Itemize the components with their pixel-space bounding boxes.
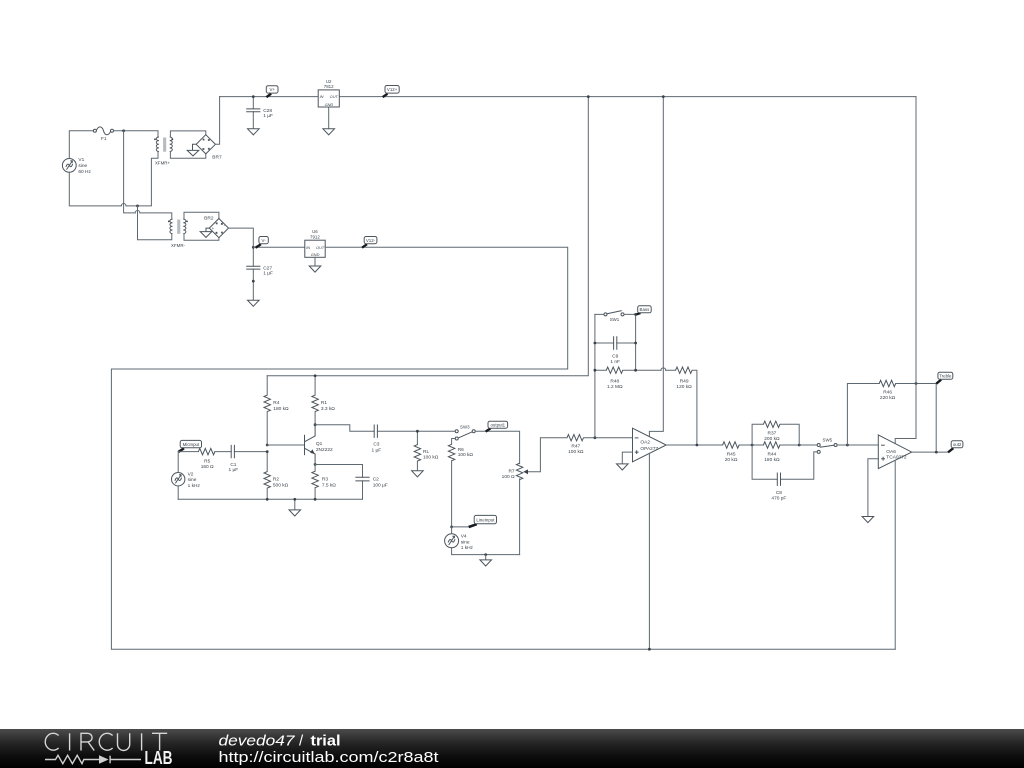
svg-text:LAB: LAB [145,748,173,768]
svg-text:7912: 7912 [310,235,320,240]
svg-text:OPA277: OPA277 [640,446,658,452]
svg-text:Q1: Q1 [316,441,323,447]
svg-text:C27: C27 [263,265,272,271]
svg-text:U2: U2 [326,79,332,84]
svg-text:output1: output1 [490,423,505,428]
svg-text:R48: R48 [610,378,619,384]
svg-text:100 kΩ: 100 kΩ [423,454,439,460]
svg-text:C8: C8 [776,490,782,496]
svg-text:1 µF: 1 µF [229,467,239,473]
svg-text:R2: R2 [273,477,279,483]
svg-text:100 kΩ: 100 kΩ [458,452,474,458]
svg-text:MicInput: MicInput [183,442,200,447]
svg-text:V+: V+ [269,87,275,92]
svg-text:1 µF: 1 µF [263,113,273,119]
svg-text:200 kΩ: 200 kΩ [764,436,780,442]
svg-text:1 kHz: 1 kHz [461,545,474,551]
svg-text:V-: V- [262,238,267,243]
svg-text:R4: R4 [273,400,279,406]
svg-text:220 kΩ: 220 kΩ [880,395,896,401]
svg-text:60 Hz: 60 Hz [78,169,91,175]
svg-text:R1: R1 [321,400,327,406]
svg-text:7812: 7812 [324,84,334,89]
svg-text:trial: trial [311,732,341,749]
svg-text:http://circuitlab.com/c2r8a8t: http://circuitlab.com/c2r8a8t [219,749,440,766]
svg-text:R37: R37 [767,431,776,437]
svg-text:V12-: V12- [366,238,376,243]
svg-text:20 kΩ: 20 kΩ [725,457,738,463]
svg-text:OA2: OA2 [640,440,650,446]
svg-text:GND: GND [311,252,320,257]
svg-text:Treble: Treble [939,374,952,379]
svg-text:100 µF: 100 µF [373,483,388,489]
svg-text:XFMR-: XFMR- [171,243,185,248]
svg-text:TCA0372: TCA0372 [886,454,907,460]
svg-text:RL: RL [423,449,429,455]
svg-text:SW3: SW3 [460,424,470,429]
svg-text:470 pF: 470 pF [771,495,786,501]
svg-text:U6: U6 [312,229,318,234]
svg-text:2N2222: 2N2222 [316,447,333,453]
svg-text:V4: V4 [461,534,467,540]
svg-text:XFMR+: XFMR+ [155,161,170,166]
svg-text:V1: V1 [78,157,84,163]
svg-text:160 Ω: 160 Ω [201,464,214,470]
svg-text:1.2 MΩ: 1.2 MΩ [607,384,623,390]
svg-text:7.5 kΩ: 7.5 kΩ [322,482,336,488]
svg-text:BR7: BR7 [212,155,222,161]
svg-text:OA6: OA6 [886,449,896,455]
svg-text:3.3 kΩ: 3.3 kΩ [321,406,335,412]
svg-text:120 kΩ: 120 kΩ [676,384,692,390]
svg-text:devedo47: devedo47 [219,732,296,749]
svg-text:R6: R6 [458,447,464,453]
svg-text:1 µF: 1 µF [372,447,382,453]
svg-text:C1: C1 [230,462,236,468]
svg-text:SW5: SW5 [823,438,833,443]
svg-text:180 kΩ: 180 kΩ [764,457,780,463]
svg-text:1 nF: 1 nF [610,359,620,365]
svg-text:out2: out2 [953,442,962,447]
svg-text:OUT: OUT [316,245,325,250]
svg-text:C28: C28 [263,108,272,114]
svg-text:C9: C9 [612,354,618,360]
svg-text:R7: R7 [508,469,514,475]
svg-text:IN: IN [320,94,324,99]
svg-text:GND: GND [325,102,334,107]
svg-text:180 kΩ: 180 kΩ [273,406,289,412]
svg-text:500 kΩ: 500 kΩ [273,482,289,488]
svg-text:sine: sine [78,163,87,169]
svg-text:R46: R46 [883,389,892,395]
svg-text:1 µF: 1 µF [263,271,273,277]
svg-text:sine: sine [188,477,197,483]
svg-text:OUT: OUT [330,94,339,99]
svg-text:R3: R3 [322,477,328,483]
svg-text:C2: C2 [373,477,379,483]
svg-text:R5: R5 [204,459,210,465]
svg-text:C3: C3 [373,442,379,448]
svg-text:SW1: SW1 [610,317,620,322]
svg-text:Bass: Bass [640,307,651,312]
svg-text:BR2: BR2 [204,215,214,221]
svg-text:R49: R49 [680,378,689,384]
svg-text:IN: IN [306,245,310,250]
svg-text:sine: sine [461,539,470,545]
svg-text:1 kHz: 1 kHz [188,483,201,489]
svg-text:100 Ω: 100 Ω [502,474,515,480]
svg-text:R45: R45 [727,451,736,457]
svg-text:LineInput: LineInput [476,518,495,523]
svg-text:V12+: V12+ [387,87,398,92]
svg-text:100 kΩ: 100 kΩ [568,449,584,455]
svg-text:R47: R47 [571,443,580,449]
svg-text:V2: V2 [188,471,194,477]
svg-text:R44: R44 [767,451,776,457]
svg-text:F1: F1 [101,136,107,142]
